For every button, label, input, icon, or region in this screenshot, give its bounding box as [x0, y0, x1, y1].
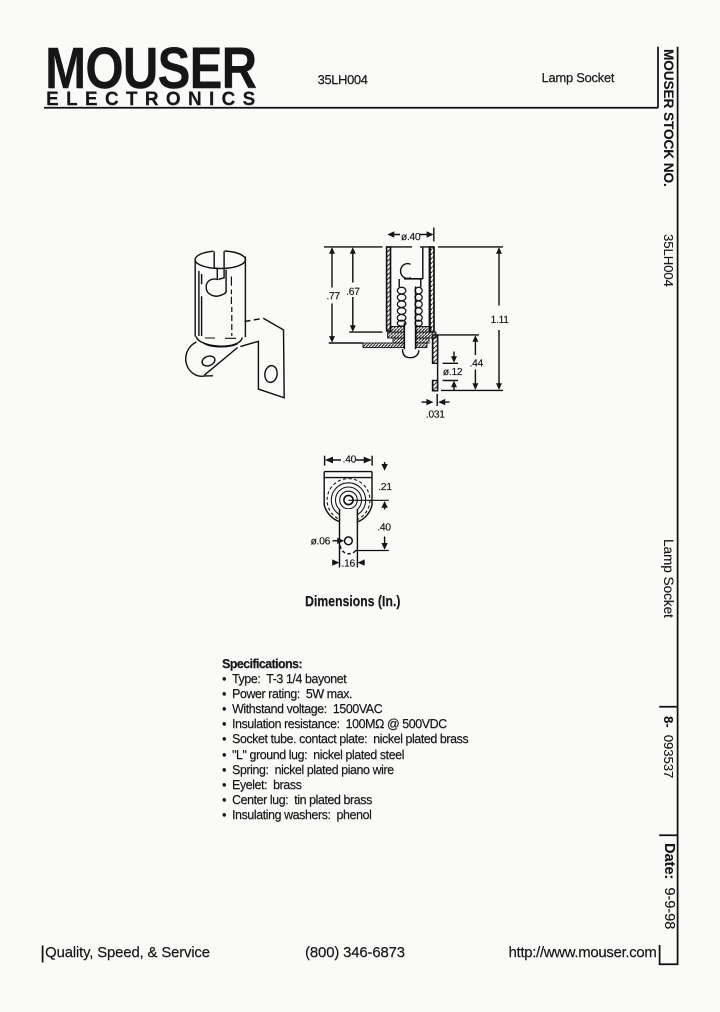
svg-text:ø.06: ø.06 — [311, 536, 331, 547]
svg-text:.77: .77 — [326, 291, 340, 302]
svg-text:1.11: 1.11 — [490, 315, 509, 326]
svg-text:.16: .16 — [341, 558, 355, 569]
svg-text:.40: .40 — [377, 522, 391, 533]
svg-text:.67: .67 — [346, 287, 360, 298]
svg-text:.40: .40 — [343, 454, 357, 465]
svg-text:ø.40: ø.40 — [401, 232, 421, 243]
svg-text:.21: .21 — [378, 482, 392, 493]
svg-text:ø.12: ø.12 — [443, 367, 463, 378]
svg-text:.031: .031 — [426, 410, 445, 421]
svg-text:.44: .44 — [469, 358, 483, 369]
